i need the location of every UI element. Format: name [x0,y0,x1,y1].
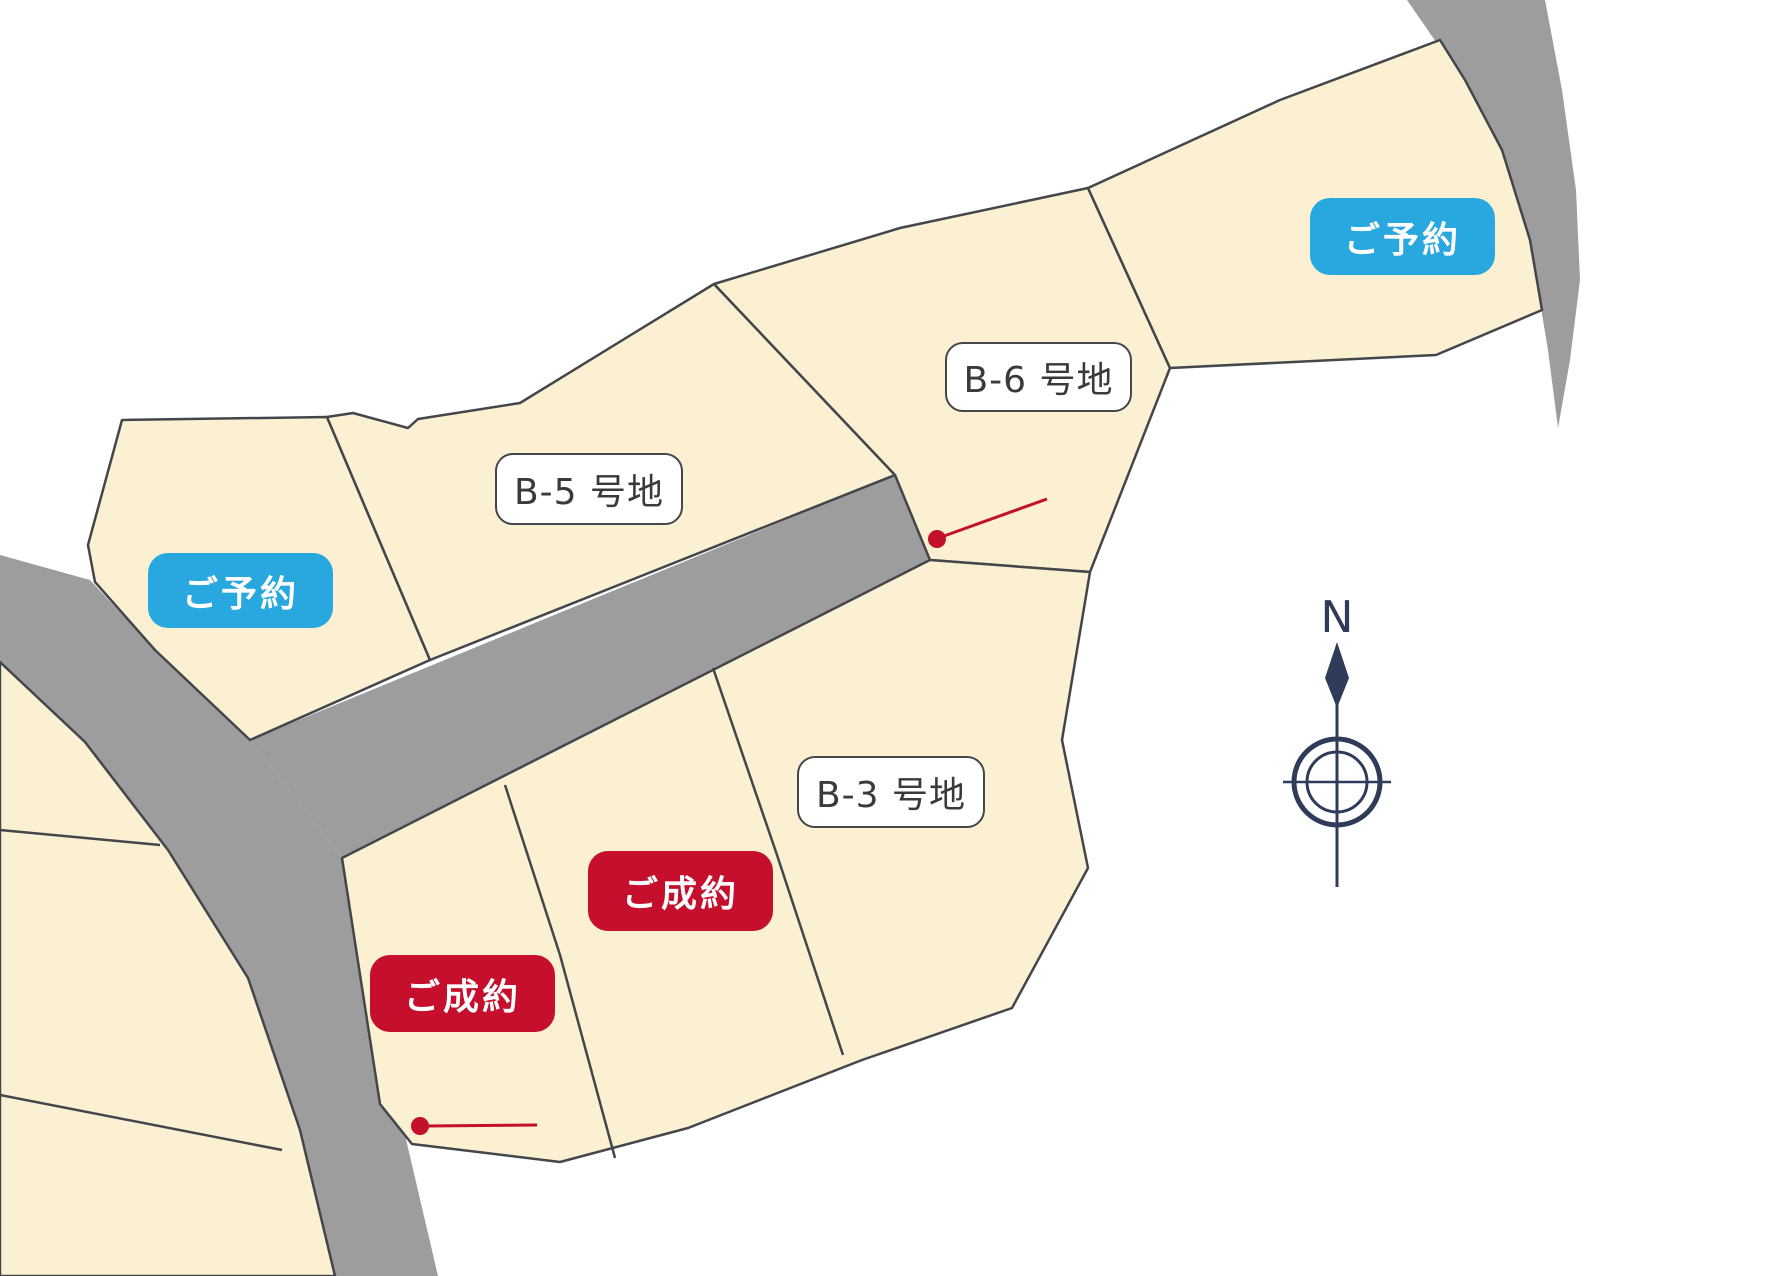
lot-label-b3: B-3 号地 [797,756,985,828]
compass-north-label: N [1321,592,1354,643]
lot-label-b6: B-6 号地 [945,342,1132,412]
status-badge-sold-upper: ご成約 [588,851,773,931]
site-plan: B-5 号地 B-6 号地 B-3 号地 ご予約 ご予約 ご成約 ご成約 N [0,0,1789,1276]
lot-label-b5: B-5 号地 [495,453,683,525]
status-badge-reserved-east: ご予約 [1310,198,1495,275]
status-badge-sold-lower: ご成約 [370,955,555,1032]
status-badge-reserved-west: ご予約 [148,553,333,628]
plan-drawing [0,0,1789,1276]
compass-icon [1283,642,1391,887]
